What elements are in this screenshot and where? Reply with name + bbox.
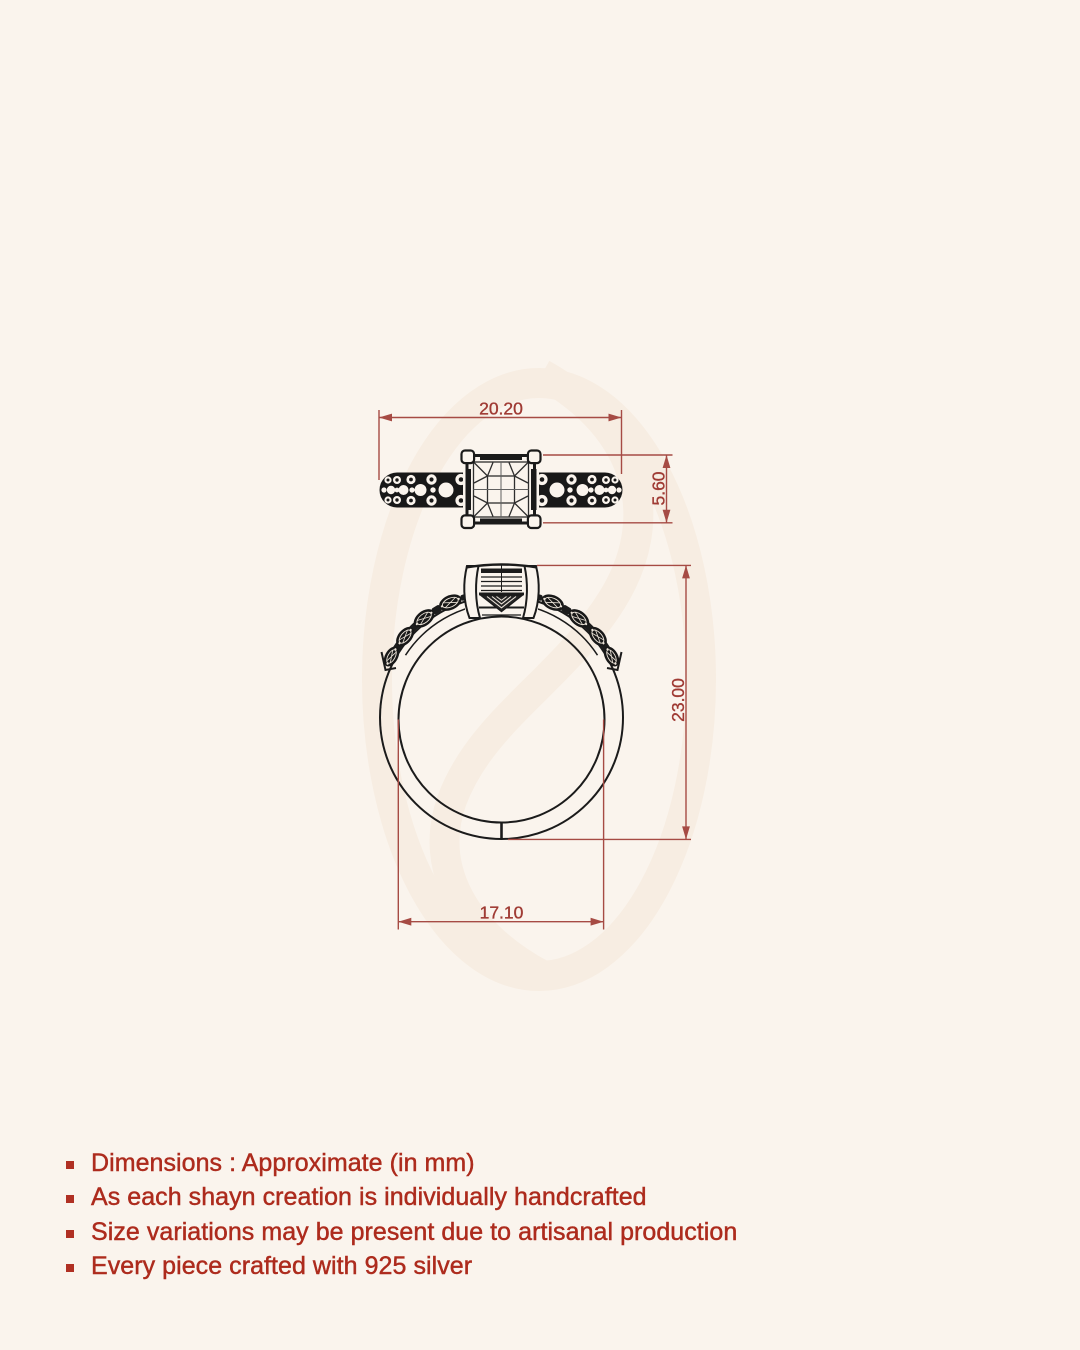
svg-text:20.20: 20.20: [479, 399, 523, 419]
svg-text:23.00: 23.00: [668, 678, 688, 722]
svg-text:17.10: 17.10: [480, 903, 524, 923]
svg-text:5.60: 5.60: [649, 471, 669, 505]
